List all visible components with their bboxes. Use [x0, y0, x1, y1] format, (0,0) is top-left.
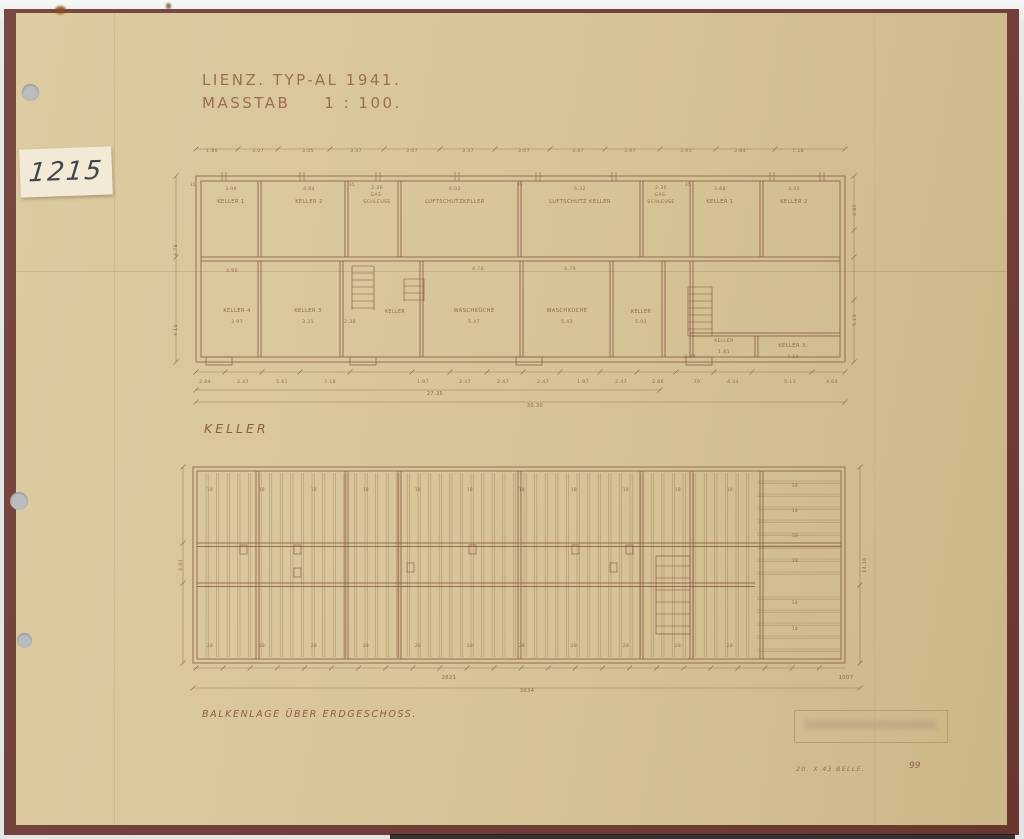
svg-text:3.07: 3.07: [406, 148, 418, 154]
svg-text:18: 18: [792, 600, 798, 605]
svg-text:28: 28: [259, 643, 265, 648]
svg-text:18: 18: [792, 533, 798, 538]
svg-text:SCHLEUSE: SCHLEUSE: [363, 199, 390, 205]
svg-text:4.10: 4.10: [173, 324, 179, 336]
svg-text:KELLER: KELLER: [385, 309, 406, 315]
svg-text:3.37: 3.37: [462, 148, 474, 154]
svg-text:18: 18: [519, 487, 525, 492]
svg-text:2.47: 2.47: [497, 379, 509, 385]
svg-text:.70: .70: [692, 379, 701, 385]
svg-text:28: 28: [207, 643, 213, 648]
svg-text:18: 18: [792, 508, 798, 513]
punch-hole: [10, 492, 28, 510]
svg-text:18: 18: [792, 626, 798, 631]
svg-text:4.34: 4.34: [727, 379, 739, 385]
svg-text:3.31: 3.31: [302, 319, 314, 325]
svg-text:KELLER 4: KELLER 4: [223, 308, 251, 314]
svg-text:5.03: 5.03: [635, 319, 647, 325]
svg-text:35: 35: [349, 182, 355, 187]
svg-text:3.97: 3.97: [231, 319, 243, 325]
svg-text:7.18: 7.18: [324, 379, 336, 385]
svg-text:18: 18: [727, 487, 733, 492]
svg-text:2.47: 2.47: [459, 379, 471, 385]
inventory-sticker: 1215: [19, 146, 113, 197]
svg-text:4.84: 4.84: [303, 186, 315, 192]
svg-text:KELLER 3: KELLER 3: [294, 308, 322, 314]
svg-text:3.07: 3.07: [252, 148, 264, 154]
svg-text:KELLER: KELLER: [631, 309, 652, 315]
svg-text:7.18: 7.18: [792, 148, 804, 154]
svg-text:GAS-: GAS-: [371, 192, 384, 198]
svg-text:18: 18: [259, 487, 265, 492]
svg-text:28: 28: [467, 643, 473, 648]
svg-text:3.68: 3.68: [714, 186, 726, 192]
stairs: [352, 266, 712, 634]
svg-text:LUFTSCHUTZKELLER: LUFTSCHUTZKELLER: [425, 199, 485, 205]
svg-text:4.04: 4.04: [826, 379, 838, 385]
svg-text:18: 18: [467, 487, 473, 492]
svg-text:2.86: 2.86: [652, 379, 664, 385]
svg-text:6.02: 6.02: [449, 186, 461, 192]
svg-text:5.47: 5.47: [468, 319, 480, 325]
svg-text:28: 28: [571, 643, 577, 648]
svg-text:3.07: 3.07: [518, 148, 530, 154]
svg-text:28: 28: [623, 643, 629, 648]
svg-text:3.84: 3.84: [734, 148, 746, 154]
svg-text:1.97: 1.97: [417, 379, 429, 385]
svg-text:35: 35: [517, 182, 523, 187]
svg-text:18: 18: [792, 483, 798, 488]
svg-text:6.32: 6.32: [574, 186, 586, 192]
punch-hole: [17, 633, 32, 648]
svg-text:SCHLEUSE: SCHLEUSE: [647, 199, 674, 205]
svg-text:18: 18: [363, 487, 369, 492]
svg-text:30.30: 30.30: [527, 403, 543, 409]
svg-text:3.37: 3.37: [350, 148, 362, 154]
svg-text:28: 28: [415, 643, 421, 648]
svg-text:5.11: 5.11: [784, 379, 796, 385]
svg-text:18: 18: [675, 487, 681, 492]
svg-text:WASCHKÜCHE: WASCHKÜCHE: [546, 307, 587, 314]
svg-text:5.43: 5.43: [561, 319, 573, 325]
svg-text:KELLER 3.: KELLER 3.: [778, 343, 808, 349]
svg-text:4.90: 4.90: [226, 268, 238, 274]
svg-text:2.47: 2.47: [615, 379, 627, 385]
inventory-number: 1215: [27, 156, 104, 189]
svg-text:5.11: 5.11: [852, 314, 858, 326]
svg-text:2.97: 2.97: [684, 354, 696, 360]
svg-text:5.61: 5.61: [276, 379, 288, 385]
svg-text:14.16: 14.16: [862, 557, 868, 572]
svg-text:2.47: 2.47: [537, 379, 549, 385]
svg-text:3.45: 3.45: [788, 186, 800, 192]
svg-text:KELLER 2: KELLER 2: [295, 199, 323, 205]
scanned-sheet: LIENZ. TYP-AL 1941. MASSTAB 1 : 100. KEL…: [0, 0, 1024, 839]
svg-text:4.65: 4.65: [852, 204, 858, 216]
svg-text:KELLER 1: KELLER 1: [706, 199, 734, 205]
svg-text:2.84: 2.84: [199, 379, 211, 385]
svg-text:18: 18: [571, 487, 577, 492]
svg-text:28: 28: [727, 643, 733, 648]
svg-text:2.47: 2.47: [237, 379, 249, 385]
svg-text:4.70: 4.70: [564, 266, 576, 272]
svg-text:27.25: 27.25: [427, 391, 443, 397]
svg-text:18: 18: [623, 487, 629, 492]
svg-text:35: 35: [190, 182, 196, 187]
svg-text:1.97: 1.97: [577, 379, 589, 385]
svg-text:2.30: 2.30: [371, 185, 383, 191]
svg-text:28: 28: [363, 643, 369, 648]
svg-text:28: 28: [311, 643, 317, 648]
svg-text:18: 18: [311, 487, 317, 492]
svg-text:1007: 1007: [839, 675, 854, 681]
svg-text:3.05: 3.05: [302, 148, 314, 154]
keller-plan-walls: [196, 172, 845, 365]
svg-text:WASCHKÜCHE: WASCHKÜCHE: [453, 307, 494, 314]
beam-joists: [206, 473, 840, 657]
svg-text:35: 35: [685, 182, 691, 187]
rust-stain: [55, 6, 66, 14]
svg-text:3.90: 3.90: [225, 186, 237, 192]
punch-hole: [22, 84, 39, 101]
svg-text:18: 18: [207, 487, 213, 492]
svg-text:2.30: 2.30: [655, 185, 667, 191]
svg-text:28: 28: [675, 643, 681, 648]
svg-text:3.07: 3.07: [624, 148, 636, 154]
svg-text:18: 18: [792, 558, 798, 563]
svg-text:28: 28: [519, 643, 525, 648]
scan-edge-strip: [390, 834, 1015, 839]
svg-text:GAS-: GAS-: [655, 192, 668, 198]
svg-text:3034: 3034: [520, 688, 535, 694]
svg-text:4.70: 4.70: [472, 266, 484, 272]
svg-text:3.01: 3.01: [680, 148, 692, 154]
svg-text:2.38: 2.38: [344, 319, 356, 325]
svg-text:KELLER: KELLER: [714, 338, 734, 344]
svg-text:KELLER 1: KELLER 1: [217, 199, 245, 205]
svg-text:1.81: 1.81: [718, 349, 730, 355]
rust-stain-small: [166, 3, 171, 9]
svg-text:1.80: 1.80: [206, 148, 218, 154]
svg-text:4.19: 4.19: [787, 354, 799, 360]
svg-text:KELLER 2: KELLER 2: [780, 199, 808, 205]
svg-text:18: 18: [415, 487, 421, 492]
svg-text:2821: 2821: [442, 675, 457, 681]
svg-text:4.78: 4.78: [173, 244, 179, 256]
svg-text:LUFTSCHUTZ KELLER: LUFTSCHUTZ KELLER: [549, 199, 611, 205]
svg-text:4.93: 4.93: [178, 559, 184, 571]
architectural-drawing: 1.803.073.053.373.073.373.073.473.073.01…: [0, 0, 1024, 839]
svg-text:3.47: 3.47: [572, 148, 584, 154]
